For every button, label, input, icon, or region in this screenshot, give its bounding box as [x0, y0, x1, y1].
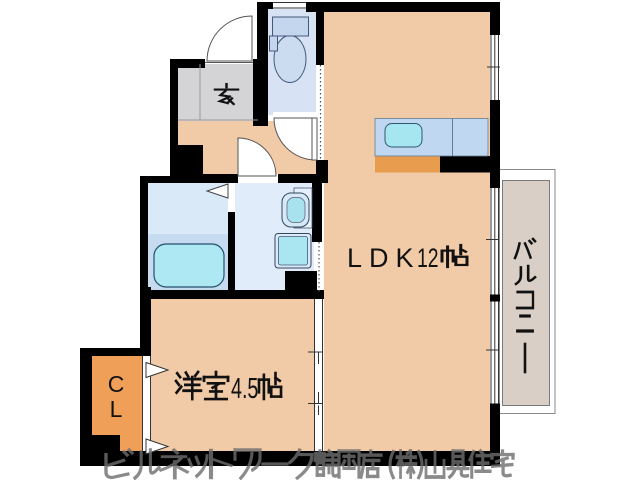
svg-text:12: 12: [417, 243, 439, 273]
svg-text:L: L: [110, 396, 123, 422]
svg-text:4.5: 4.5: [231, 373, 258, 405]
svg-text:LDK: LDK: [347, 243, 421, 273]
svg-text:C: C: [108, 371, 125, 397]
